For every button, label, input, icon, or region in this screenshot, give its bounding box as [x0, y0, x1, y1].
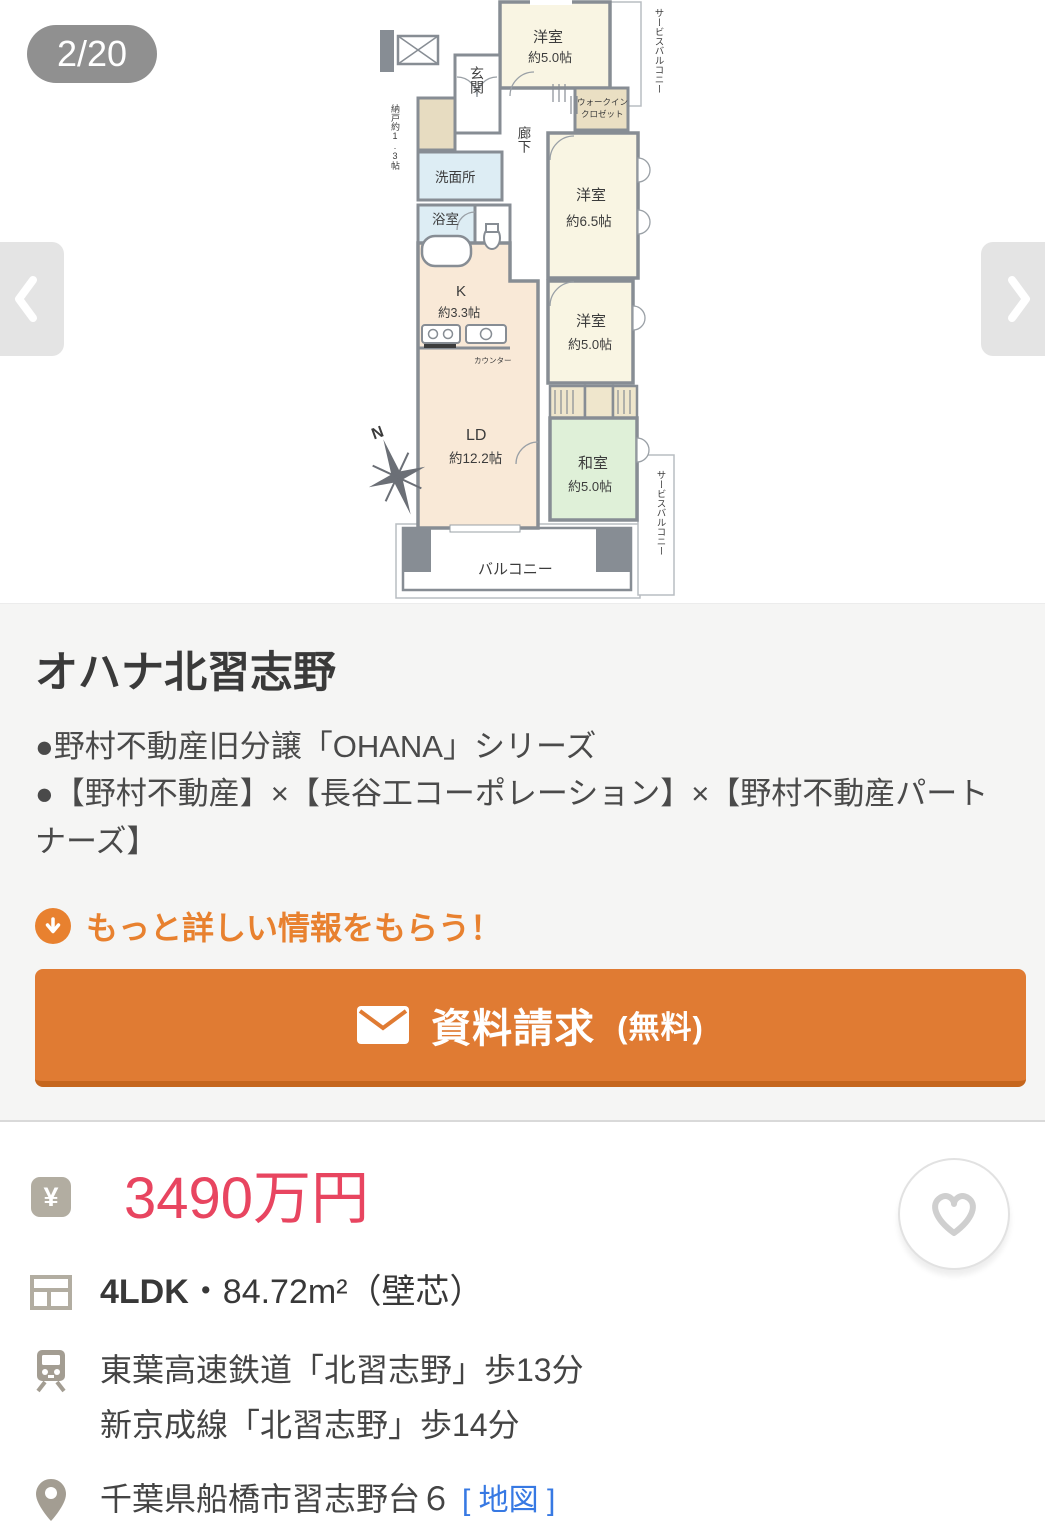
request-brochure-label: 資料請求 [431, 996, 595, 1054]
heart-icon [927, 1189, 981, 1239]
chevron-right-icon [1005, 275, 1033, 323]
photo-counter-badge: 2/20 [27, 25, 157, 83]
label-washitsu: 和室 [578, 455, 608, 472]
property-description: ●野村不動産旧分譲「OHANA」シリーズ ●【野村不動産】×【長谷工コーポレーシ… [35, 723, 1010, 864]
label-yoshitsu-mid-size: 約5.0帖 [568, 337, 612, 352]
address-text: 千葉県船橋市習志野台６[ 地図 ] [100, 1475, 555, 1525]
access-line-2: 新京成線「北習志野」歩14分 [100, 1398, 584, 1453]
label-kitchen: K [456, 283, 466, 300]
address-row: 千葉県船橋市習志野台６[ 地図 ] [28, 1475, 1015, 1525]
label-yokushitsu: 浴室 [432, 211, 459, 227]
floorplan-icon [30, 1275, 72, 1311]
chevron-left-icon [12, 275, 40, 323]
layout-row: 4LDK・84.72m²（壁芯） [28, 1269, 1015, 1315]
layout-value: 4LDK [100, 1273, 189, 1311]
access-line-1: 東葉高速鉄道「北習志野」歩13分 [100, 1343, 584, 1398]
location-pin-icon [36, 1479, 66, 1521]
label-genkan: 玄関 [469, 65, 485, 95]
property-bullet-2: ●【野村不動産】×【長谷工コーポレーション】×【野村不動産パートナーズ】 [35, 770, 1010, 864]
label-ld: LD [466, 427, 486, 444]
label-ld-size: 約12.2帖 [449, 451, 502, 466]
label-senmenjo: 洗面所 [435, 170, 476, 185]
yen-icon: ¥ [31, 1177, 71, 1217]
address-value: 千葉県船橋市習志野台６ [100, 1481, 452, 1517]
cta-heading-label: もっと詳しい情報をもらう！ [86, 903, 502, 949]
price-value: 3490万円 [124, 1163, 369, 1235]
price-row: ¥ 3490万円 [28, 1163, 1015, 1235]
layout-area-text: 4LDK・84.72m²（壁芯） [100, 1269, 484, 1315]
label-rouka: 廊下 [516, 125, 532, 154]
label-kitchen-size: 約3.3帖 [438, 305, 480, 320]
label-washitsu-size: 約5.0帖 [568, 479, 612, 494]
label-counter: カウンター [474, 356, 512, 365]
request-brochure-note: (無料) [617, 1002, 704, 1047]
room-yoshitsu-65 [548, 133, 638, 278]
property-summary-card: オハナ北習志野 ●野村不動産旧分譲「OHANA」シリーズ ●【野村不動産】×【長… [0, 603, 1045, 1122]
label-yoshitsu-top-size: 約5.0帖 [528, 50, 572, 65]
label-service-balcony-top: サービスバルコニー [653, 8, 665, 94]
label-wic-2: クロゼット [581, 109, 624, 119]
label-balcony: バルコニー [478, 561, 553, 578]
listing-details: ¥ 3490万円 4LDK・84.72m²（壁芯） [0, 1125, 1045, 1525]
property-bullet-1: ●野村不動産旧分譲「OHANA」シリーズ [35, 723, 1010, 770]
property-title: オハナ北習志野 [35, 650, 1010, 697]
bathtub-icon [422, 236, 471, 266]
down-arrow-circle-icon [35, 908, 71, 944]
photo-carousel: N 洋室 約5.0帖 ウォークイン クロゼット 玄関 納戸約1.3帖 洗面所 浴… [0, 0, 1045, 603]
label-yoshitsu-top: 洋室 [533, 29, 563, 46]
label-yoshitsu-65-size: 約6.5帖 [566, 214, 612, 229]
train-icon [33, 1349, 69, 1393]
cta-heading: もっと詳しい情報をもらう！ [35, 903, 1010, 949]
map-link[interactable]: [ 地図 ] [462, 1484, 555, 1517]
area-value: ・84.72m²（壁芯） [189, 1273, 484, 1311]
label-yoshitsu-mid: 洋室 [576, 313, 606, 330]
mail-icon [357, 1006, 409, 1044]
access-text: 東葉高速鉄道「北習志野」歩13分 新京成線「北習志野」歩14分 [100, 1343, 584, 1453]
favorite-button[interactable] [898, 1158, 1010, 1270]
room-k-ld [418, 243, 538, 528]
access-row: 東葉高速鉄道「北習志野」歩13分 新京成線「北習志野」歩14分 [28, 1343, 1015, 1453]
carousel-prev-button[interactable] [0, 242, 64, 356]
label-nando: 納戸約1.3帖 [390, 103, 400, 171]
label-service-balcony-bottom: サービスバルコニー [655, 470, 667, 556]
carousel-next-button[interactable] [981, 242, 1045, 356]
room-nando [418, 98, 455, 150]
floorplan-image[interactable]: N 洋室 約5.0帖 ウォークイン クロゼット 玄関 納戸約1.3帖 洗面所 浴… [350, 0, 710, 603]
request-brochure-button[interactable]: 資料請求(無料) [35, 969, 1026, 1087]
label-wic-1: ウォークイン [577, 97, 628, 107]
label-yoshitsu-65: 洋室 [576, 187, 606, 204]
room-yoshitsu-mid [548, 281, 633, 383]
